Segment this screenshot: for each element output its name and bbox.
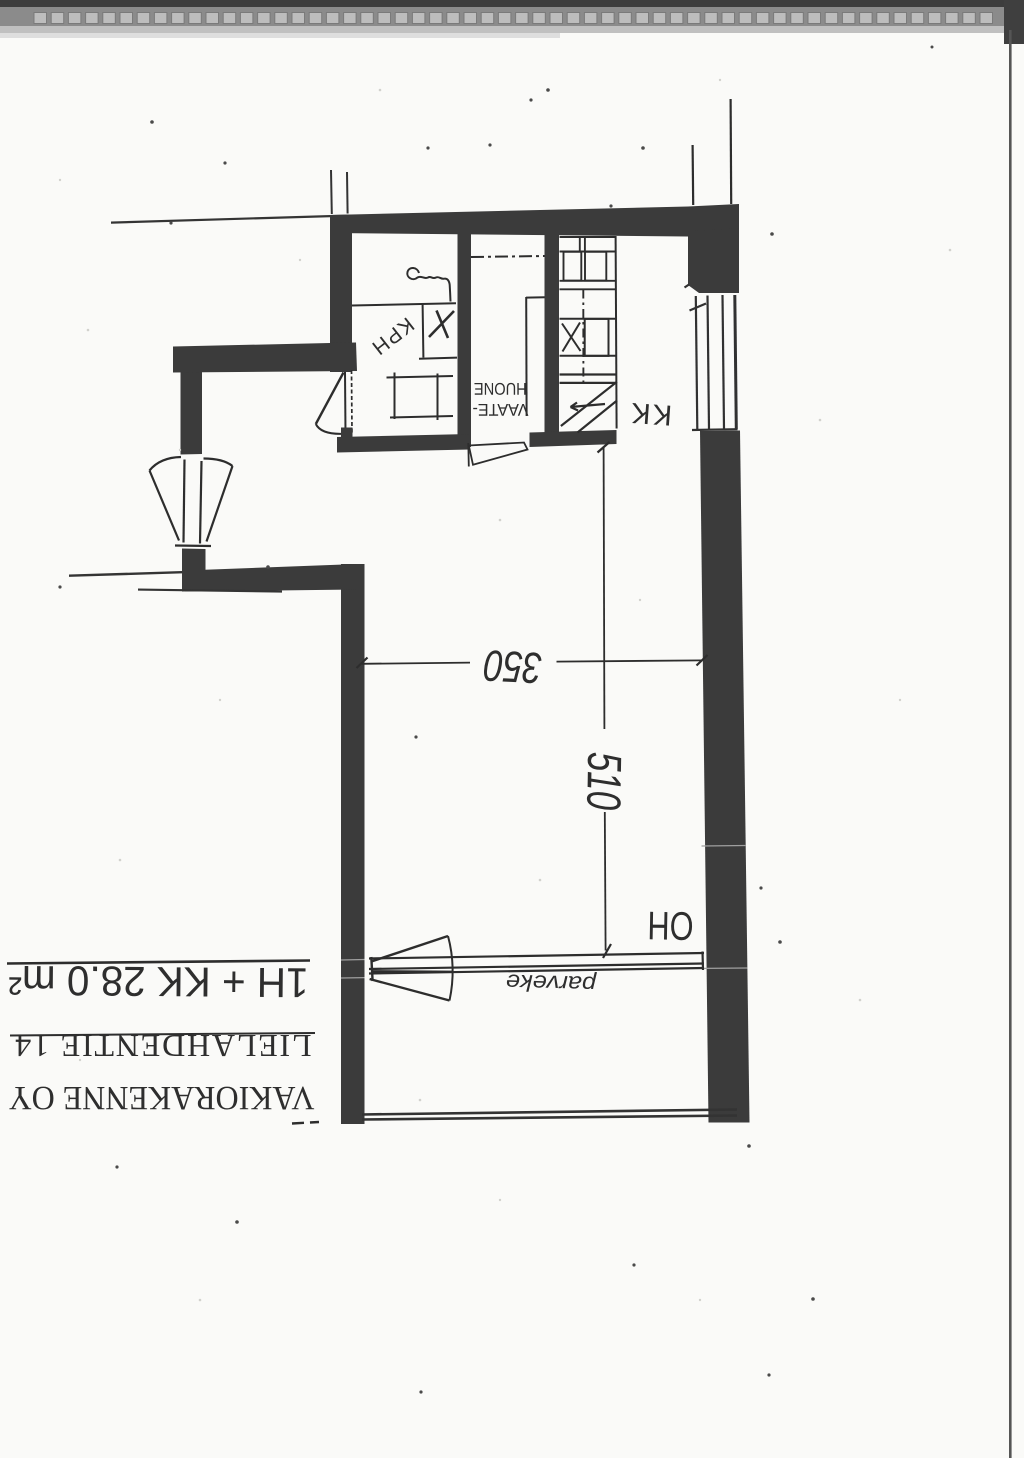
svg-text:350: 350 [482,640,543,692]
svg-text:LIELAHDENTIE 14: LIELAHDENTIE 14 [13,1028,311,1064]
svg-text:510: 510 [576,752,630,811]
svg-text:KK: KK [628,396,673,431]
svg-text:1H + KK 28.0 m²: 1H + KK 28.0 m² [8,957,308,1007]
svg-text:HUONE: HUONE [474,379,527,398]
svg-text:parveke: parveke [506,970,598,998]
svg-text:OH: OH [647,903,694,948]
svg-text:VAATE-: VAATE- [473,400,529,419]
svg-text:KPH: KPH [366,312,418,359]
svg-text:VAKIORAKENNE OY: VAKIORAKENNE OY [9,1079,315,1116]
